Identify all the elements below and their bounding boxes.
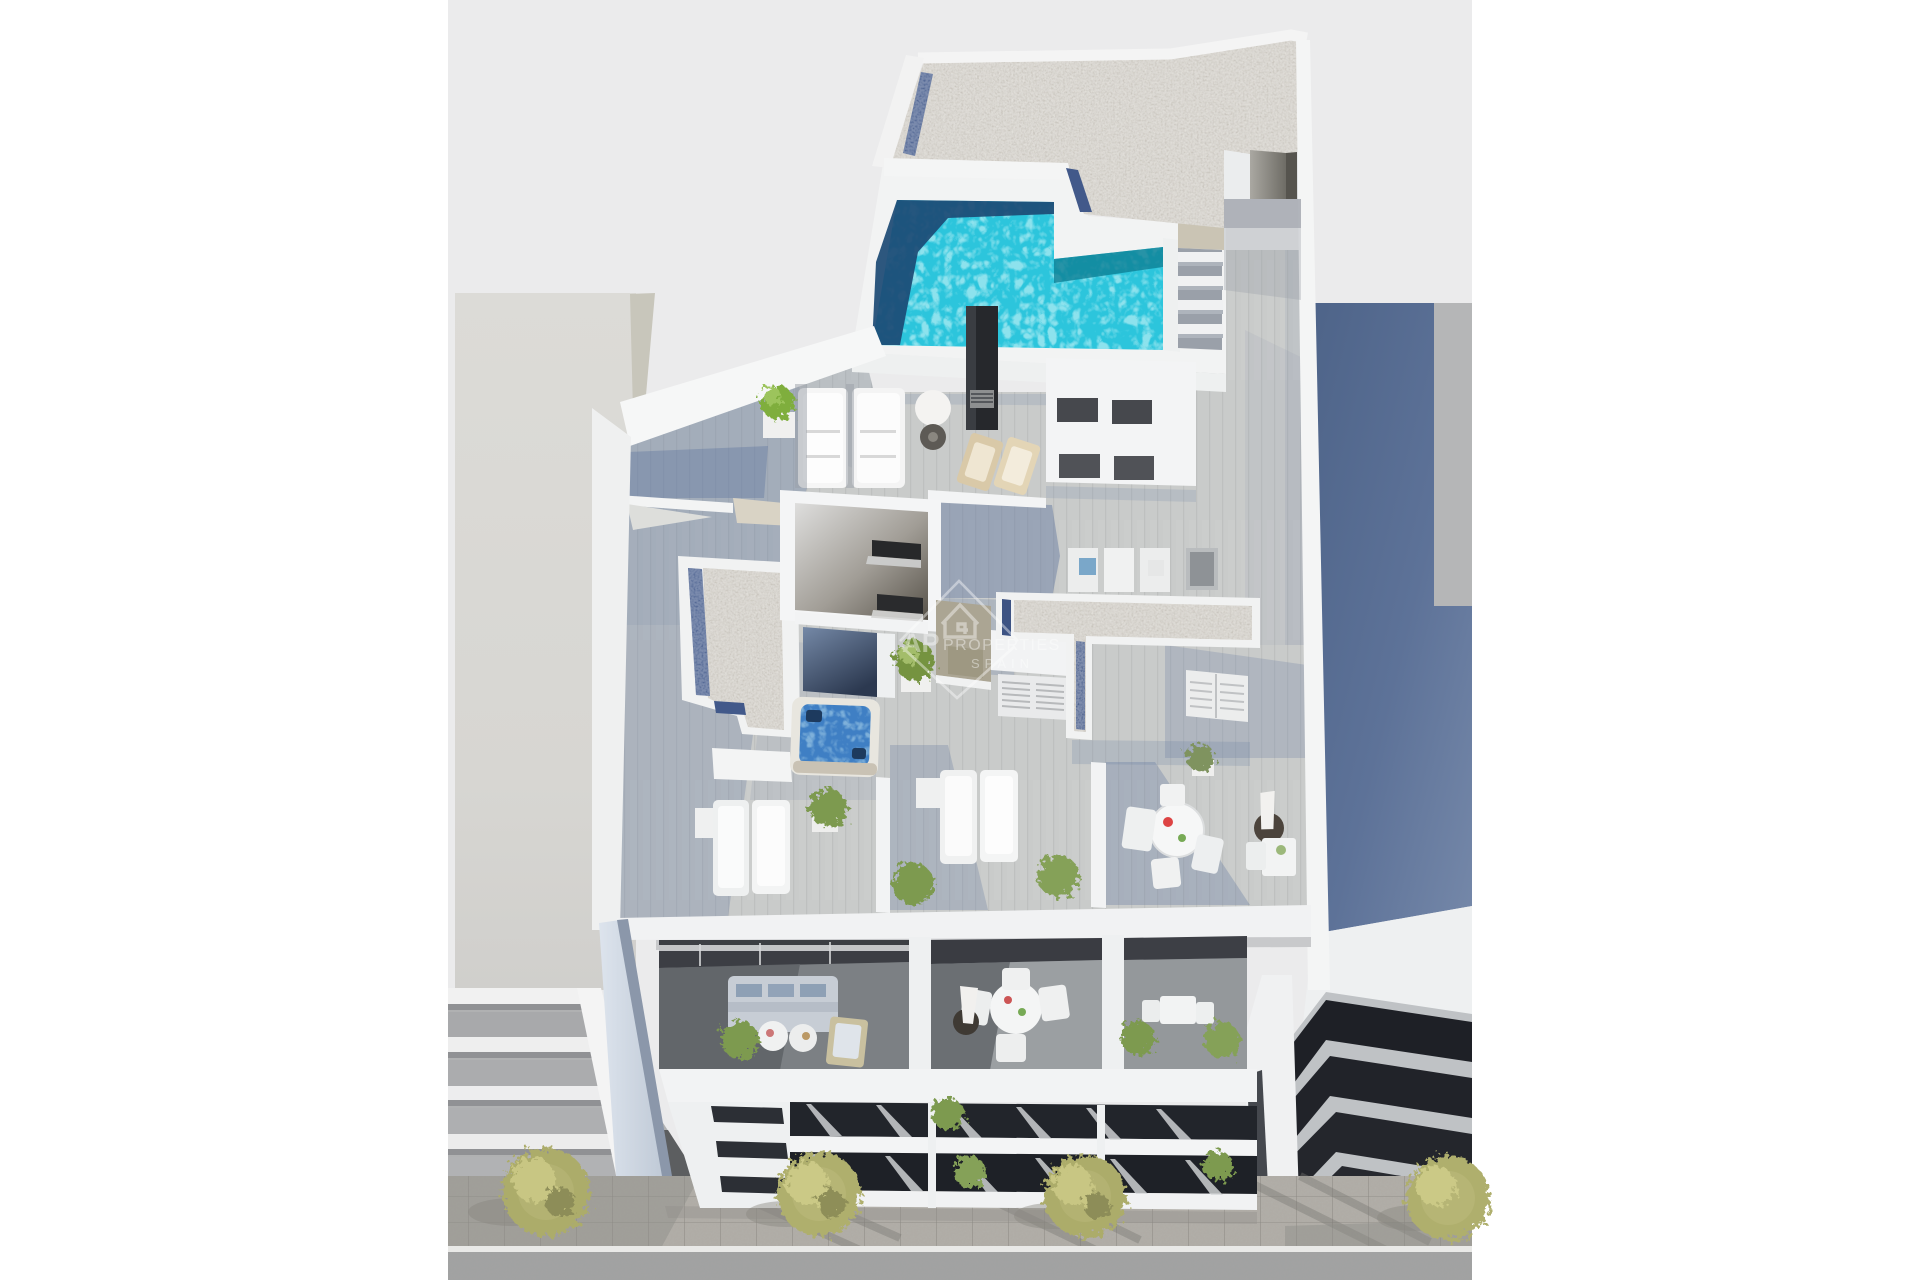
svg-text:PROPERTIES: PROPERTIES <box>943 637 1061 654</box>
svg-text:AP: AP <box>902 628 940 658</box>
svg-text:SPAIN: SPAIN <box>971 656 1034 671</box>
